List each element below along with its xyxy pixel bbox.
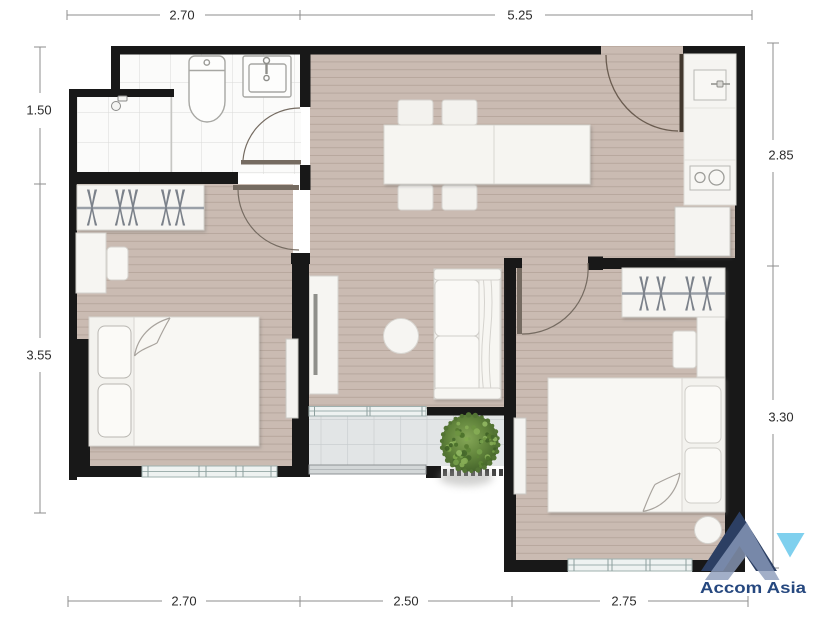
svg-text:5.25: 5.25 bbox=[507, 8, 532, 23]
svg-text:Accom Asia: Accom Asia bbox=[700, 580, 806, 597]
svg-text:3.30: 3.30 bbox=[768, 410, 793, 425]
svg-text:2.70: 2.70 bbox=[169, 8, 194, 23]
svg-text:2.50: 2.50 bbox=[393, 594, 418, 609]
svg-text:2.70: 2.70 bbox=[171, 594, 196, 609]
svg-text:3.55: 3.55 bbox=[26, 348, 51, 363]
svg-text:2.85: 2.85 bbox=[768, 148, 793, 163]
svg-text:1.50: 1.50 bbox=[26, 103, 51, 118]
svg-text:2.75: 2.75 bbox=[611, 594, 636, 609]
